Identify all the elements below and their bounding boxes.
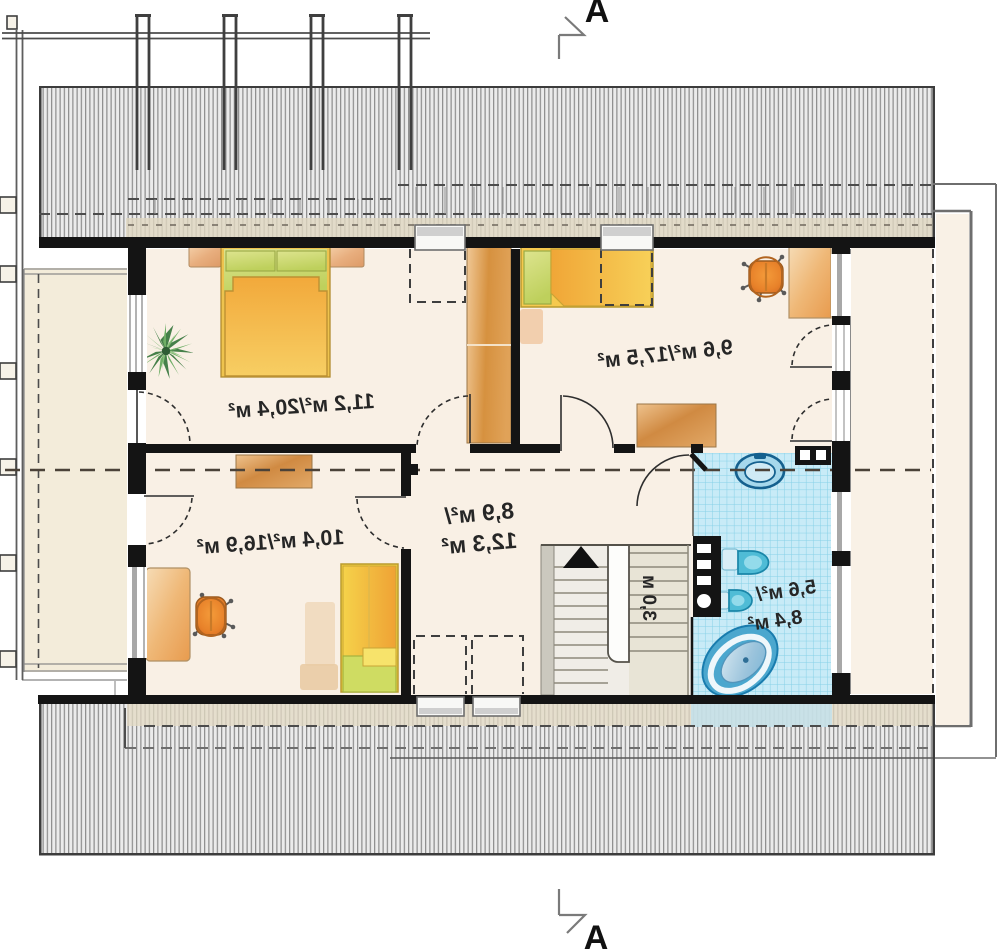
svg-text:A: A (584, 919, 609, 949)
svg-text:3,0 м: 3,0 м (638, 575, 659, 621)
svg-text:A: A (585, 0, 610, 30)
